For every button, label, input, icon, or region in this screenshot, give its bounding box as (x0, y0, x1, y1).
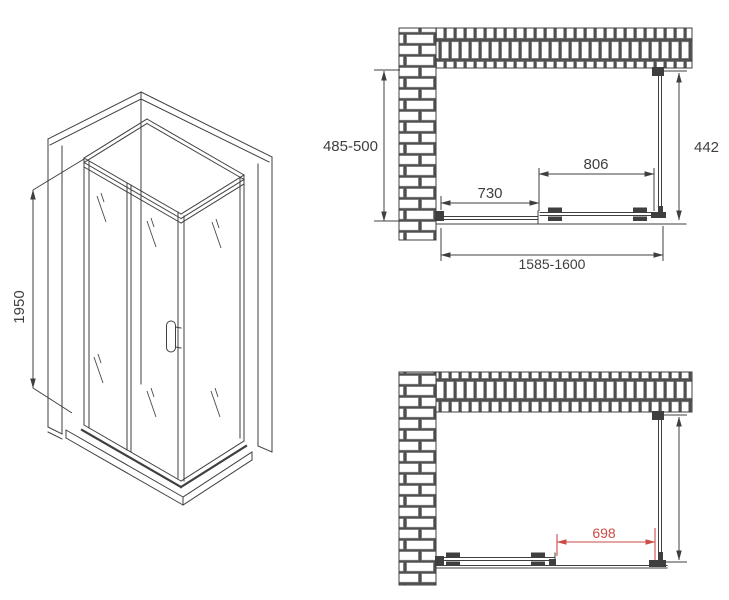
dimension-total-1585-1600: 1585-1600 (441, 226, 663, 272)
brick-wall-side-strip (399, 372, 436, 585)
technical-drawing-sheet: 1950 (0, 0, 729, 600)
door-label: 806 (583, 156, 608, 173)
door-end-guide (549, 559, 556, 565)
roller-carriage (633, 208, 647, 213)
door-track (435, 206, 686, 224)
roller-carriage (633, 217, 647, 222)
roller-carriage (446, 553, 460, 558)
plan-view-top: 485-500 442 806 730 1585-1600 (323, 28, 719, 272)
base-tray (66, 425, 252, 505)
roller-carriage (531, 553, 545, 558)
wall-corner (48, 92, 272, 452)
total-width-label: 1585-1600 (519, 256, 586, 272)
glass-reflection-marks (94, 193, 221, 417)
brick-wall-top-band (436, 372, 692, 412)
depth-label: 485-500 (323, 138, 378, 155)
door-track (435, 552, 667, 568)
roller-carriage (548, 217, 562, 222)
dimension-opening-698: 698 (557, 525, 655, 560)
opening-label: 698 (592, 525, 616, 541)
brick-wall-top-band (436, 28, 692, 68)
brick-wall-side-strip (399, 28, 436, 240)
dimension-door-806: 806 (539, 156, 654, 211)
dimension-side-442: 442 (657, 71, 719, 220)
dimension-depth-485-500: 485-500 (323, 70, 400, 221)
corner-bracket (658, 206, 663, 218)
plan-view-bottom: 698 (399, 372, 692, 585)
side-glass-panel (652, 411, 664, 557)
corner-bracket (649, 560, 666, 567)
glass-panels (84, 158, 244, 481)
side-panel-label: 442 (694, 139, 719, 156)
enclosure-top-frame (84, 119, 244, 223)
dimension-fixed-730: 730 (441, 185, 539, 210)
wall-profile-bracket (435, 211, 444, 221)
roller-carriage (548, 208, 562, 213)
height-label: 1950 (11, 290, 28, 323)
shower-enclosure-drawing: 1950 (0, 0, 729, 600)
fixed-panel-label: 730 (477, 185, 502, 202)
door-handle (167, 321, 182, 352)
isometric-view: 1950 (11, 92, 272, 505)
